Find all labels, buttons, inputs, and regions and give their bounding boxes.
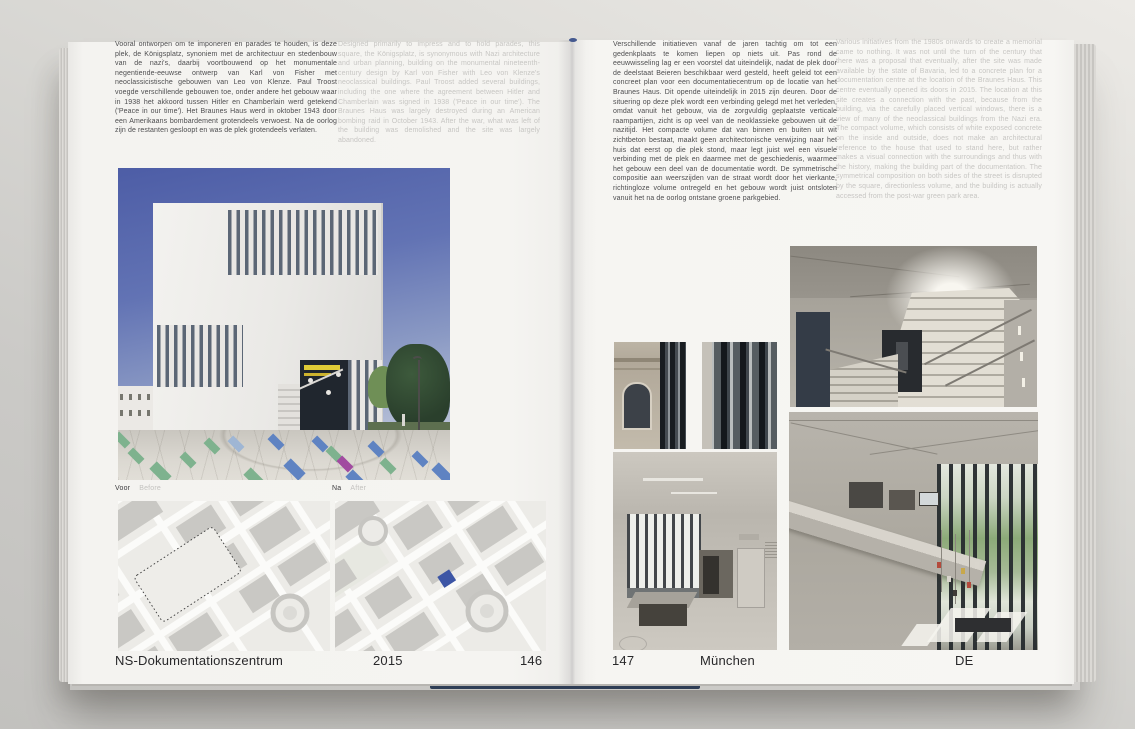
before-label-nl: Voor	[115, 485, 130, 492]
wall-text	[765, 542, 777, 560]
staircase-photo	[790, 246, 1037, 407]
after-label-nl: Na	[332, 485, 341, 492]
atrium-photo	[789, 412, 1038, 650]
footer-project-title: NS-Dokumentationszentrum	[115, 653, 283, 668]
vertical-windows	[627, 514, 701, 588]
hanging-exhibit	[937, 562, 941, 568]
door	[737, 548, 765, 608]
window-band-middle	[157, 325, 243, 387]
map-before-caption: VoorBefore	[115, 485, 161, 492]
bollard	[402, 414, 405, 426]
fore-edge-left	[59, 48, 68, 682]
right-page-dutch-text: Verschillende initiatieven vanaf de jare…	[613, 40, 837, 203]
dark-panel	[796, 312, 830, 407]
footer-page-number-left: 146	[520, 653, 542, 668]
plaza-pavement	[118, 430, 450, 480]
exhibition-room-photo	[613, 452, 777, 650]
book-photograph: Vooral ontworpen om te imponeren en para…	[0, 0, 1135, 729]
descending-stair	[830, 354, 898, 407]
left-page-dutch-text: Vooral ontworpen om te imponeren en para…	[115, 40, 337, 136]
book-gutter	[558, 40, 586, 684]
left-page-english-text: Designed primarily to impress and to hol…	[338, 40, 540, 146]
map-before	[118, 501, 330, 651]
display-screen	[919, 492, 939, 506]
window-slats-photo	[702, 342, 777, 449]
arched-window	[622, 382, 652, 430]
modern-slats	[660, 342, 686, 449]
headband	[569, 38, 577, 42]
footer-country-code: DE	[955, 653, 973, 668]
documentation-center-cube	[153, 203, 383, 430]
background-building	[118, 386, 153, 430]
right-page-english-text: Various initiatives from the 1980s onwar…	[836, 38, 1042, 201]
lamp-post	[418, 360, 420, 430]
before-label-en: Before	[139, 485, 161, 492]
after-label-en: After	[350, 485, 366, 492]
fore-edge-right	[1074, 44, 1096, 682]
footer-page-number-right: 147	[612, 653, 634, 668]
footer-city: München	[700, 653, 755, 668]
entrance-stairs	[278, 384, 300, 430]
building-exterior-photo	[118, 168, 450, 480]
map-after-caption: NaAfter	[332, 485, 366, 492]
bench	[955, 618, 1011, 632]
facade-detail-photo	[614, 342, 686, 449]
map-after	[335, 501, 546, 651]
entrance-sign	[304, 365, 340, 370]
window-band-top	[228, 210, 378, 275]
footer-year: 2015	[373, 653, 403, 668]
